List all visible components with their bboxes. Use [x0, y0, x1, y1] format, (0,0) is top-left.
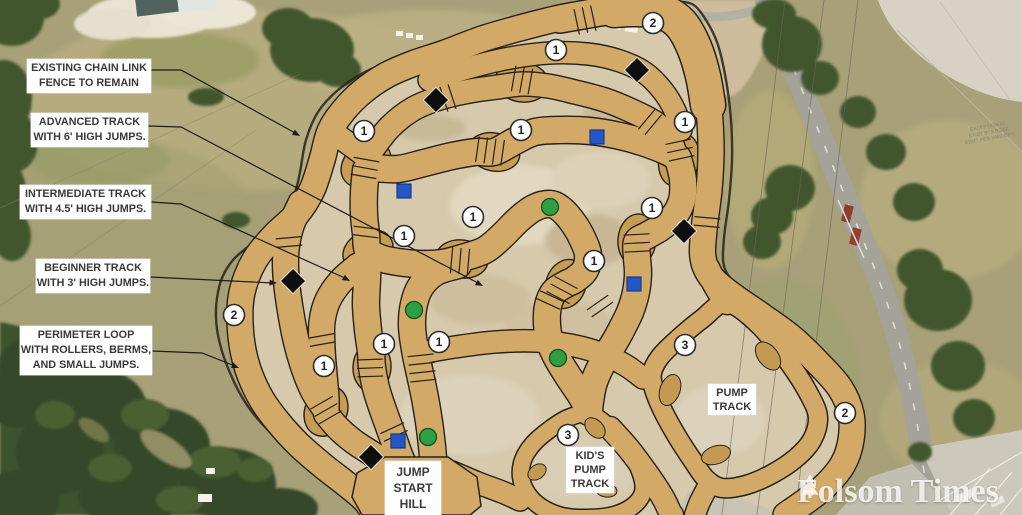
svg-text:1: 1 — [470, 210, 477, 224]
svg-text:1: 1 — [381, 337, 388, 351]
svg-text:2: 2 — [842, 406, 849, 420]
svg-text:1: 1 — [401, 229, 408, 243]
svg-text:3: 3 — [682, 338, 689, 352]
svg-text:1: 1 — [682, 115, 689, 129]
svg-text:2: 2 — [650, 16, 657, 30]
svg-text:1: 1 — [649, 201, 656, 215]
svg-text:2: 2 — [231, 308, 238, 322]
svg-text:1: 1 — [518, 123, 525, 137]
svg-text:1: 1 — [553, 43, 560, 57]
svg-text:1: 1 — [321, 359, 328, 373]
svg-text:1: 1 — [591, 254, 598, 268]
svg-text:1: 1 — [436, 335, 443, 349]
svg-text:1: 1 — [361, 124, 368, 138]
svg-text:3: 3 — [565, 428, 572, 442]
